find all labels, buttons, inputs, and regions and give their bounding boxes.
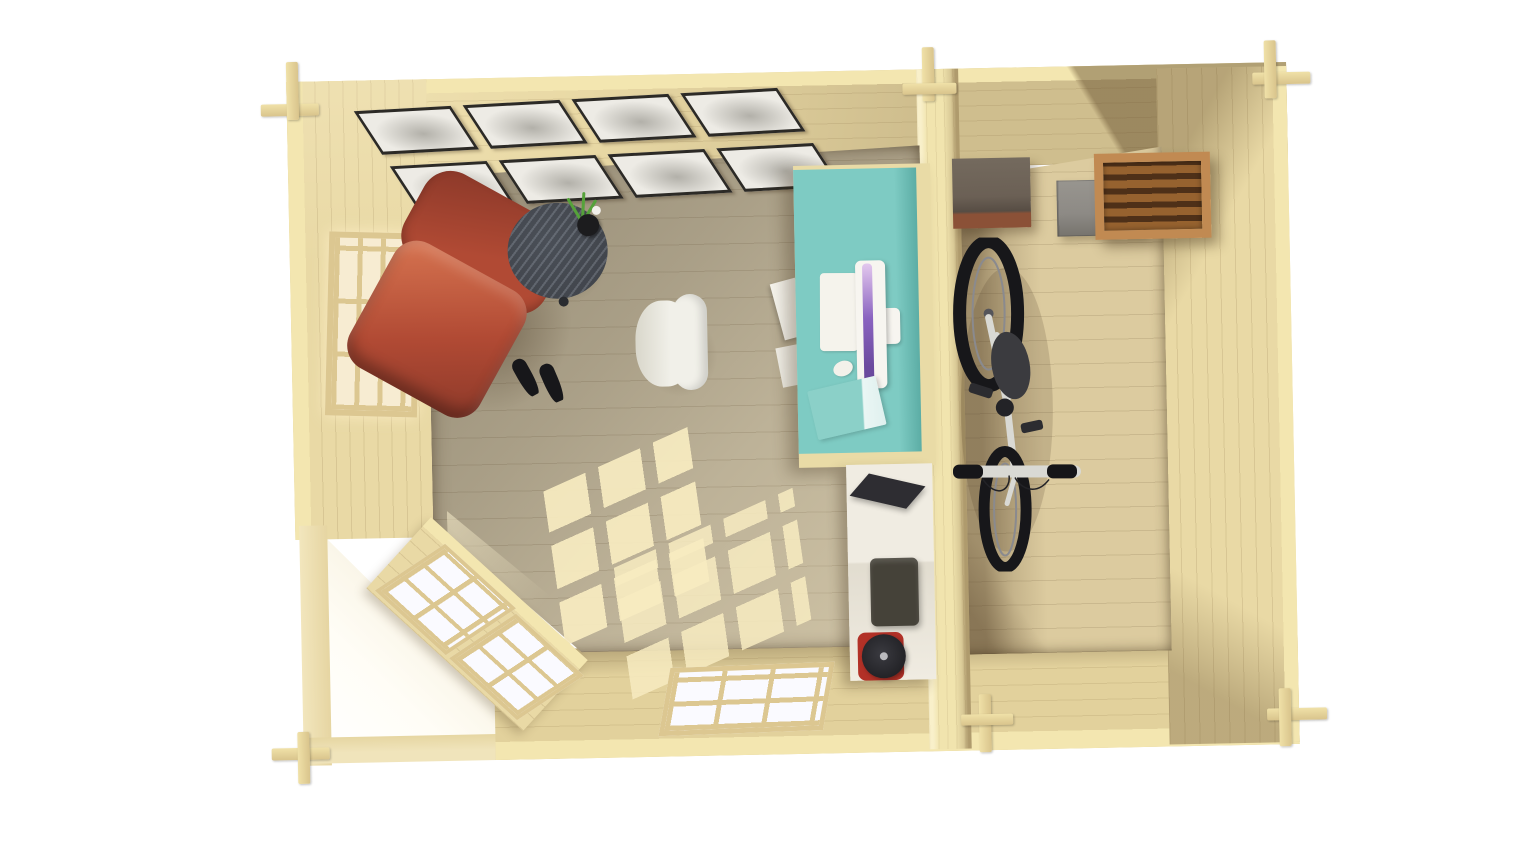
log-end	[961, 714, 1013, 726]
log-end	[1264, 40, 1277, 98]
keyboard	[820, 273, 858, 351]
scene-canvas	[0, 0, 1536, 864]
picture-frame	[571, 94, 696, 143]
office-chair-seat	[635, 300, 695, 387]
bottom-wall-window	[658, 662, 834, 736]
log-end	[1252, 72, 1310, 85]
laptop	[850, 474, 926, 509]
picture-frame	[463, 100, 588, 149]
picture-frame	[499, 155, 624, 204]
picture-frame	[607, 149, 732, 198]
bike-grip-right	[1047, 464, 1077, 478]
printer	[870, 558, 919, 627]
log-end	[902, 83, 956, 95]
log-end	[297, 732, 310, 784]
monitor-screen	[862, 263, 874, 385]
log-end	[1279, 688, 1292, 746]
bike-crank	[996, 399, 1014, 417]
cabin-building	[286, 56, 1300, 774]
white-cabinet	[846, 463, 936, 681]
slatted-wooden-crate	[1094, 152, 1212, 240]
rustic-wooden-box	[952, 157, 1031, 229]
log-end	[286, 62, 299, 120]
desk-top	[793, 167, 922, 453]
bicycle	[948, 237, 1085, 571]
turquoise-book	[807, 376, 887, 441]
bike-grip-left	[953, 465, 983, 479]
left-wall-lower-beam	[299, 525, 332, 766]
turquoise-desk	[793, 163, 936, 468]
white-office-chair	[634, 290, 708, 395]
log-end	[1267, 707, 1327, 720]
mouse	[831, 358, 855, 379]
monitor	[855, 260, 888, 389]
